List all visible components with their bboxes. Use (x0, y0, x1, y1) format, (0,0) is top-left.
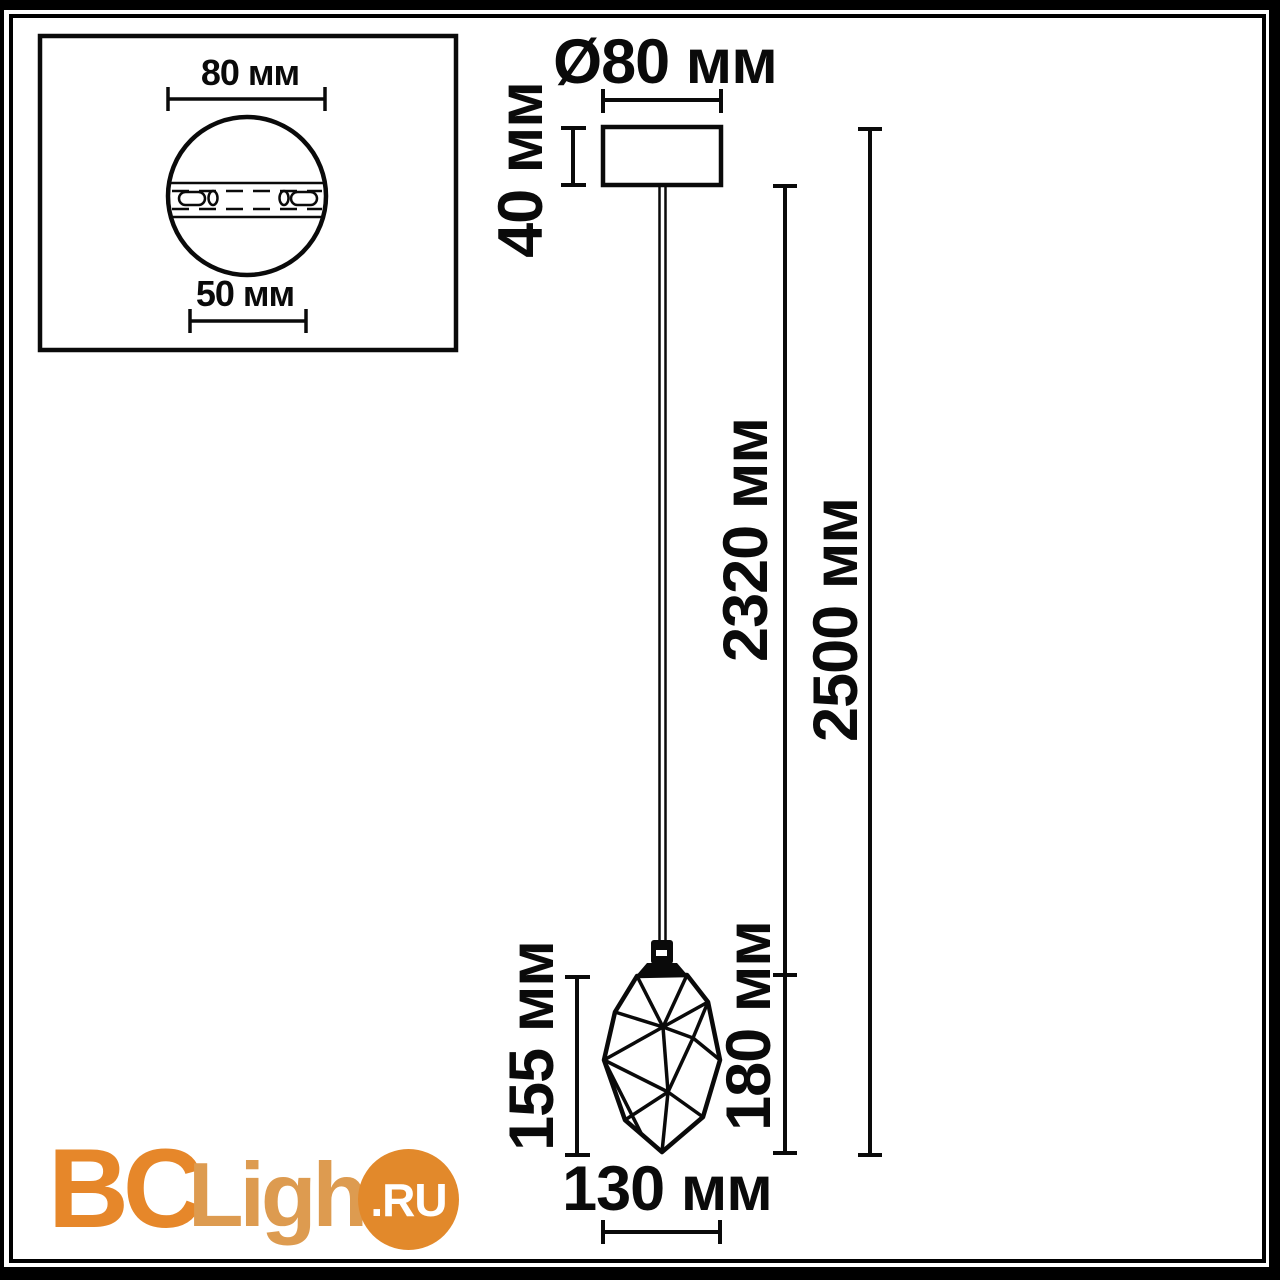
ceiling-canopy (603, 127, 721, 185)
logo-circle: .RU (358, 1149, 459, 1250)
pendant-dimension-drawing (0, 0, 1280, 1280)
bracket-slot-right (291, 192, 317, 205)
shade-outline (604, 975, 720, 1152)
canopy-height-label: 40 мм (485, 82, 557, 258)
overall-height-label: 2500 мм (800, 498, 872, 742)
bracket-slot-left (179, 192, 205, 205)
shade-drop-label: 180 мм (713, 921, 785, 1131)
dim-canopy-height (561, 128, 586, 185)
suspension-cable (660, 185, 666, 941)
mounting-bracket (169, 183, 326, 217)
dim-shade-height (565, 977, 590, 1155)
canopy-diameter-label: Ø80 мм (553, 26, 777, 98)
canopy-top-view-circle (168, 117, 326, 275)
cord-length-label: 2320 мм (710, 418, 782, 662)
detail-plate-diameter-label: 80 мм (201, 52, 299, 94)
shade-height-label: 155 мм (496, 941, 568, 1151)
logo-text-bc: BC (48, 1133, 198, 1245)
crystal-shade (604, 975, 720, 1152)
lamp-socket (635, 940, 689, 977)
detail-bracket-width-label: 50 мм (196, 273, 294, 315)
logo-text-ru: .RU (370, 1173, 446, 1227)
bracket-hole-right (280, 191, 289, 205)
bracket-hole-left (209, 191, 218, 205)
shade-width-label: 130 мм (562, 1153, 772, 1225)
